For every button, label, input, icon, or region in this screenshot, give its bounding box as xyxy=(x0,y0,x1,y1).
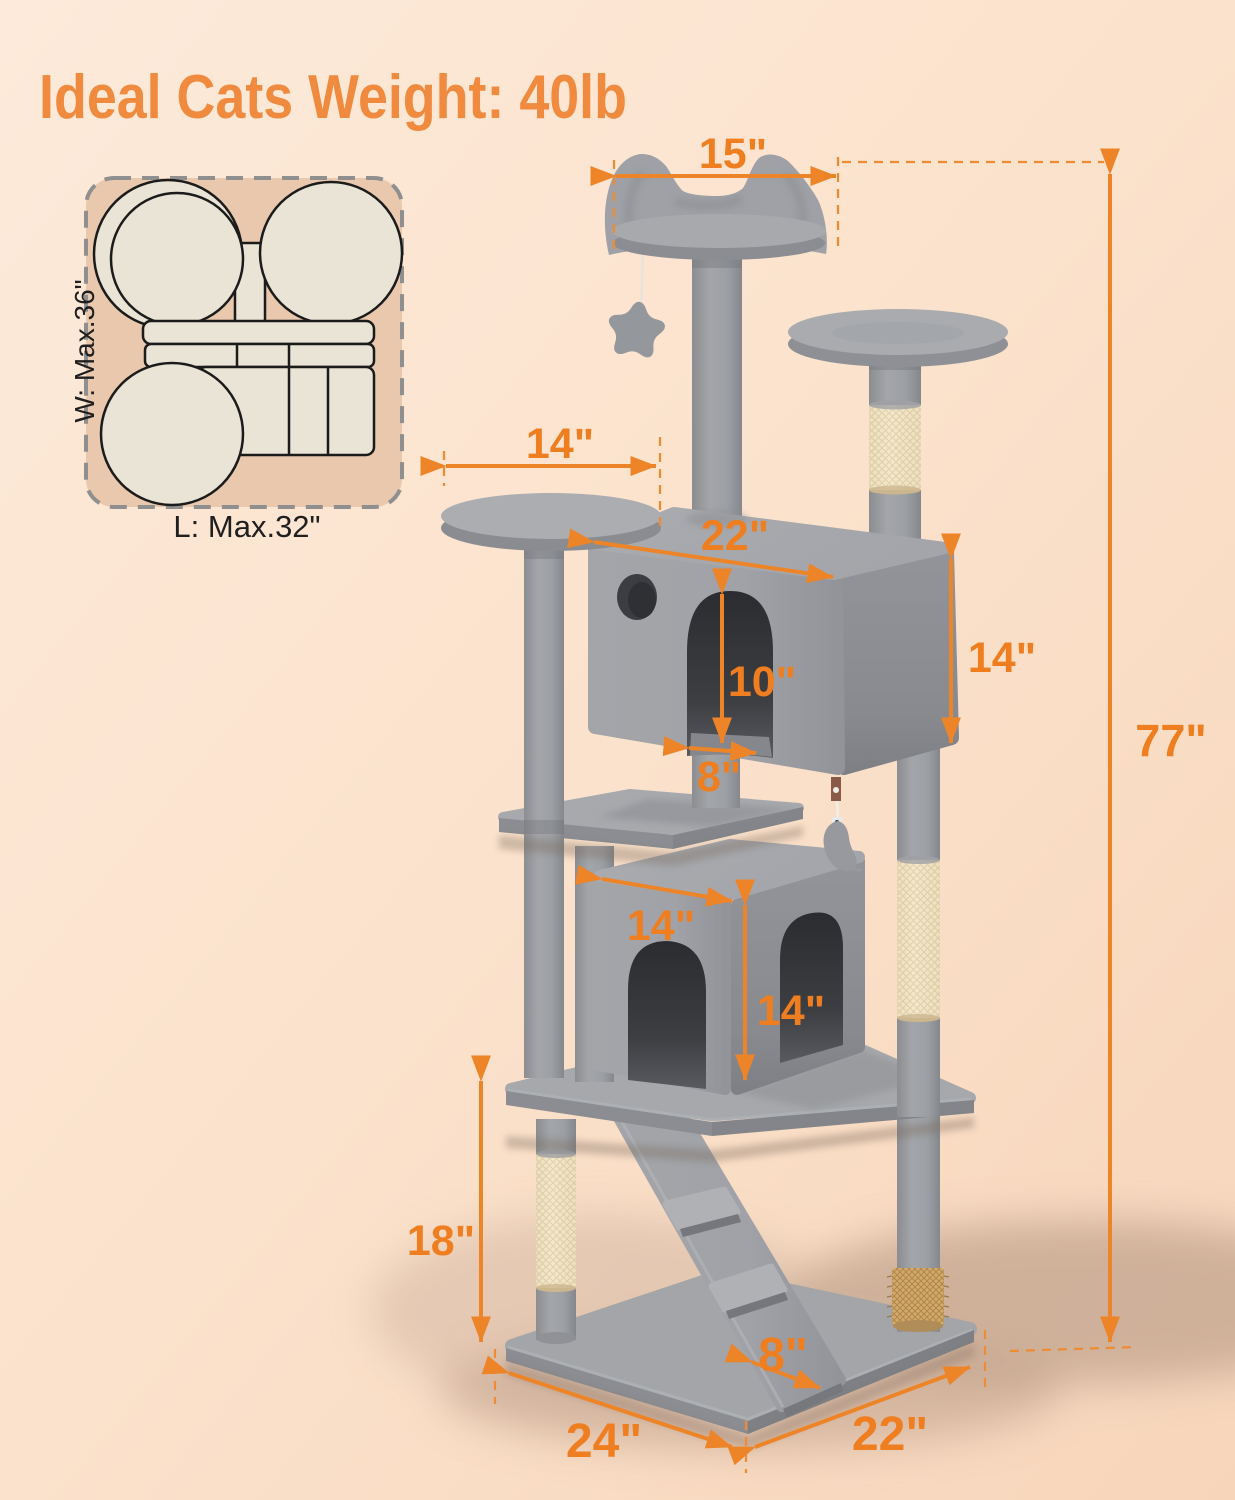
svg-text:Ideal Cats Weight: 40lb: Ideal Cats Weight: 40lb xyxy=(39,63,627,132)
svg-text:22": 22" xyxy=(701,512,769,560)
svg-text:8": 8" xyxy=(697,753,741,801)
svg-text:22": 22" xyxy=(852,1408,928,1461)
svg-text:8": 8" xyxy=(758,1329,807,1382)
svg-text:10": 10" xyxy=(728,658,796,706)
svg-text:14": 14" xyxy=(968,634,1036,682)
svg-text:18": 18" xyxy=(407,1217,475,1265)
svg-text:14": 14" xyxy=(526,420,594,468)
svg-text:L: Max.32": L: Max.32" xyxy=(173,509,320,544)
svg-text:24": 24" xyxy=(566,1415,642,1468)
svg-text:77": 77" xyxy=(1135,715,1206,766)
svg-text:14": 14" xyxy=(627,902,695,950)
svg-text:W: Max.36": W: Max.36" xyxy=(69,279,100,422)
svg-text:15": 15" xyxy=(699,130,767,178)
svg-text:14": 14" xyxy=(757,987,825,1035)
